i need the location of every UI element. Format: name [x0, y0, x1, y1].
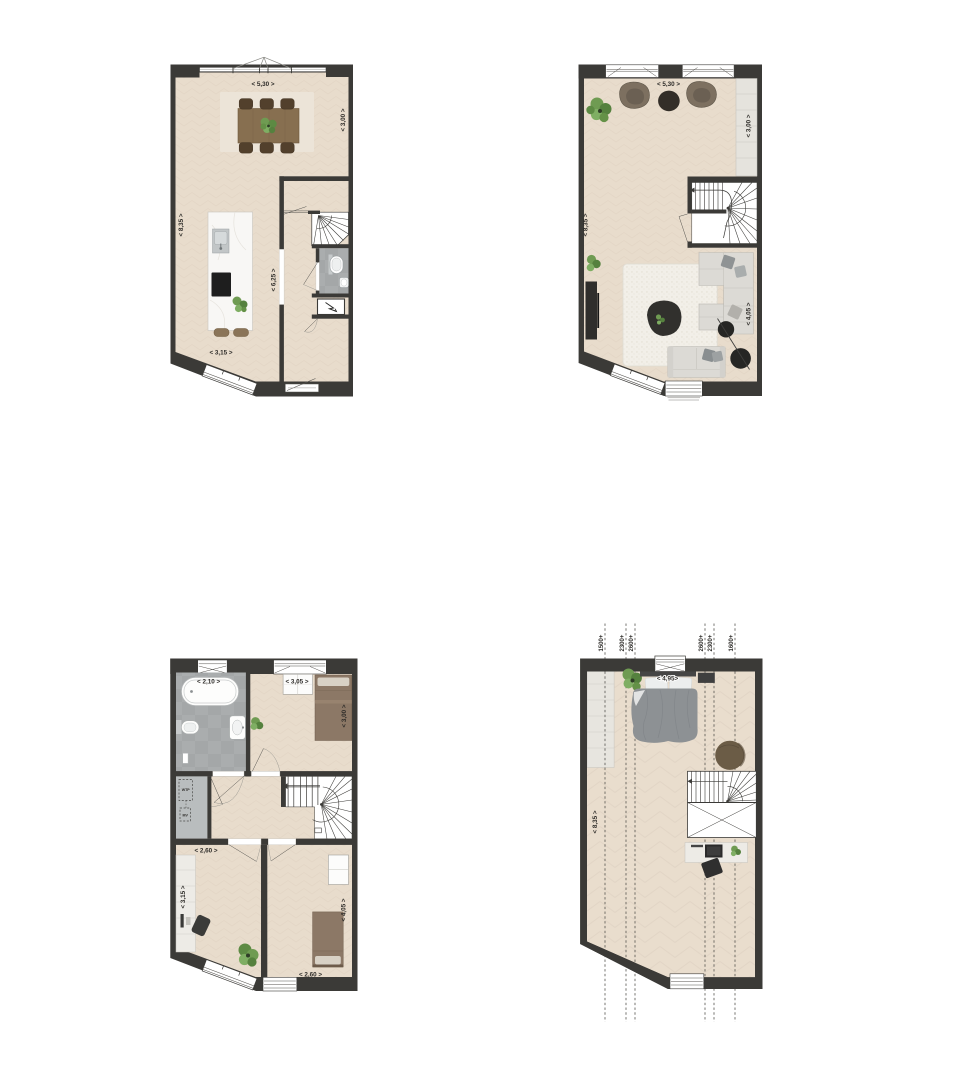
svg-text:< 6,25 >: < 6,25 > — [271, 268, 278, 291]
svg-text:2300+: 2300+ — [708, 634, 714, 651]
svg-text:< 3,15 >: < 3,15 > — [180, 885, 187, 908]
svg-text:< 3,05 >: < 3,05 > — [285, 679, 308, 686]
svg-text:< 4,95>: < 4,95> — [657, 676, 679, 683]
svg-text:1600+: 1600+ — [729, 634, 735, 651]
svg-text:1500+: 1500+ — [599, 634, 605, 651]
svg-text:< 5,30 >: < 5,30 > — [251, 81, 274, 88]
svg-text:< 2,60 >: < 2,60 > — [299, 972, 322, 979]
svg-text:< 2,10 >: < 2,10 > — [197, 679, 220, 686]
svg-text:< 3,15 >: < 3,15 > — [209, 350, 232, 357]
svg-text:< 3,00 >: < 3,00 > — [746, 114, 753, 137]
svg-text:WTP: WTP — [182, 788, 191, 792]
svg-text:2300+: 2300+ — [620, 634, 626, 651]
svg-text:< 3,00 >: < 3,00 > — [340, 108, 347, 131]
svg-text:< 4,05 >: < 4,05 > — [341, 898, 348, 921]
svg-text:2600+: 2600+ — [629, 634, 635, 651]
svg-text:< 2,60 >: < 2,60 > — [194, 848, 217, 855]
svg-text:2600+: 2600+ — [699, 634, 705, 651]
svg-text:< 8,35 >: < 8,35 > — [178, 213, 185, 236]
svg-text:MV: MV — [183, 814, 189, 818]
svg-text:< 8,35 >: < 8,35 > — [592, 810, 599, 833]
svg-text:< 4,05 >: < 4,05 > — [746, 302, 753, 325]
svg-text:< 3,00 >: < 3,00 > — [341, 704, 348, 727]
svg-text:< 8,35 >: < 8,35 > — [583, 213, 590, 236]
svg-text:< 5,30 >: < 5,30 > — [657, 81, 680, 88]
